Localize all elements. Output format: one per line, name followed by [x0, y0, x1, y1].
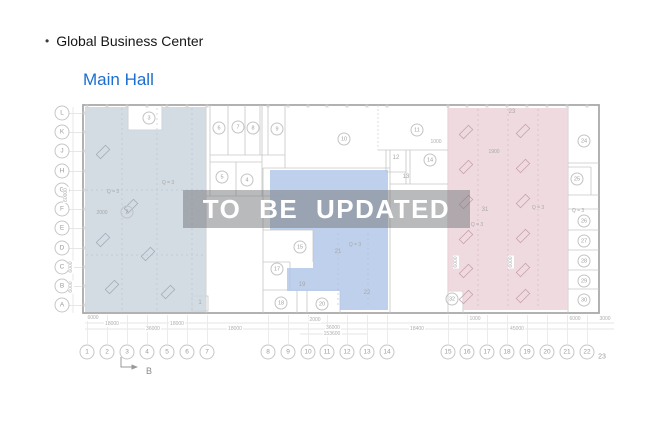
app-canvas: • Global Business Center Main Hall [0, 0, 660, 440]
to-be-updated-banner: TO BE UPDATED [183, 190, 470, 228]
banner-text: TO BE UPDATED [203, 194, 450, 225]
section-b-arrow [121, 357, 138, 370]
